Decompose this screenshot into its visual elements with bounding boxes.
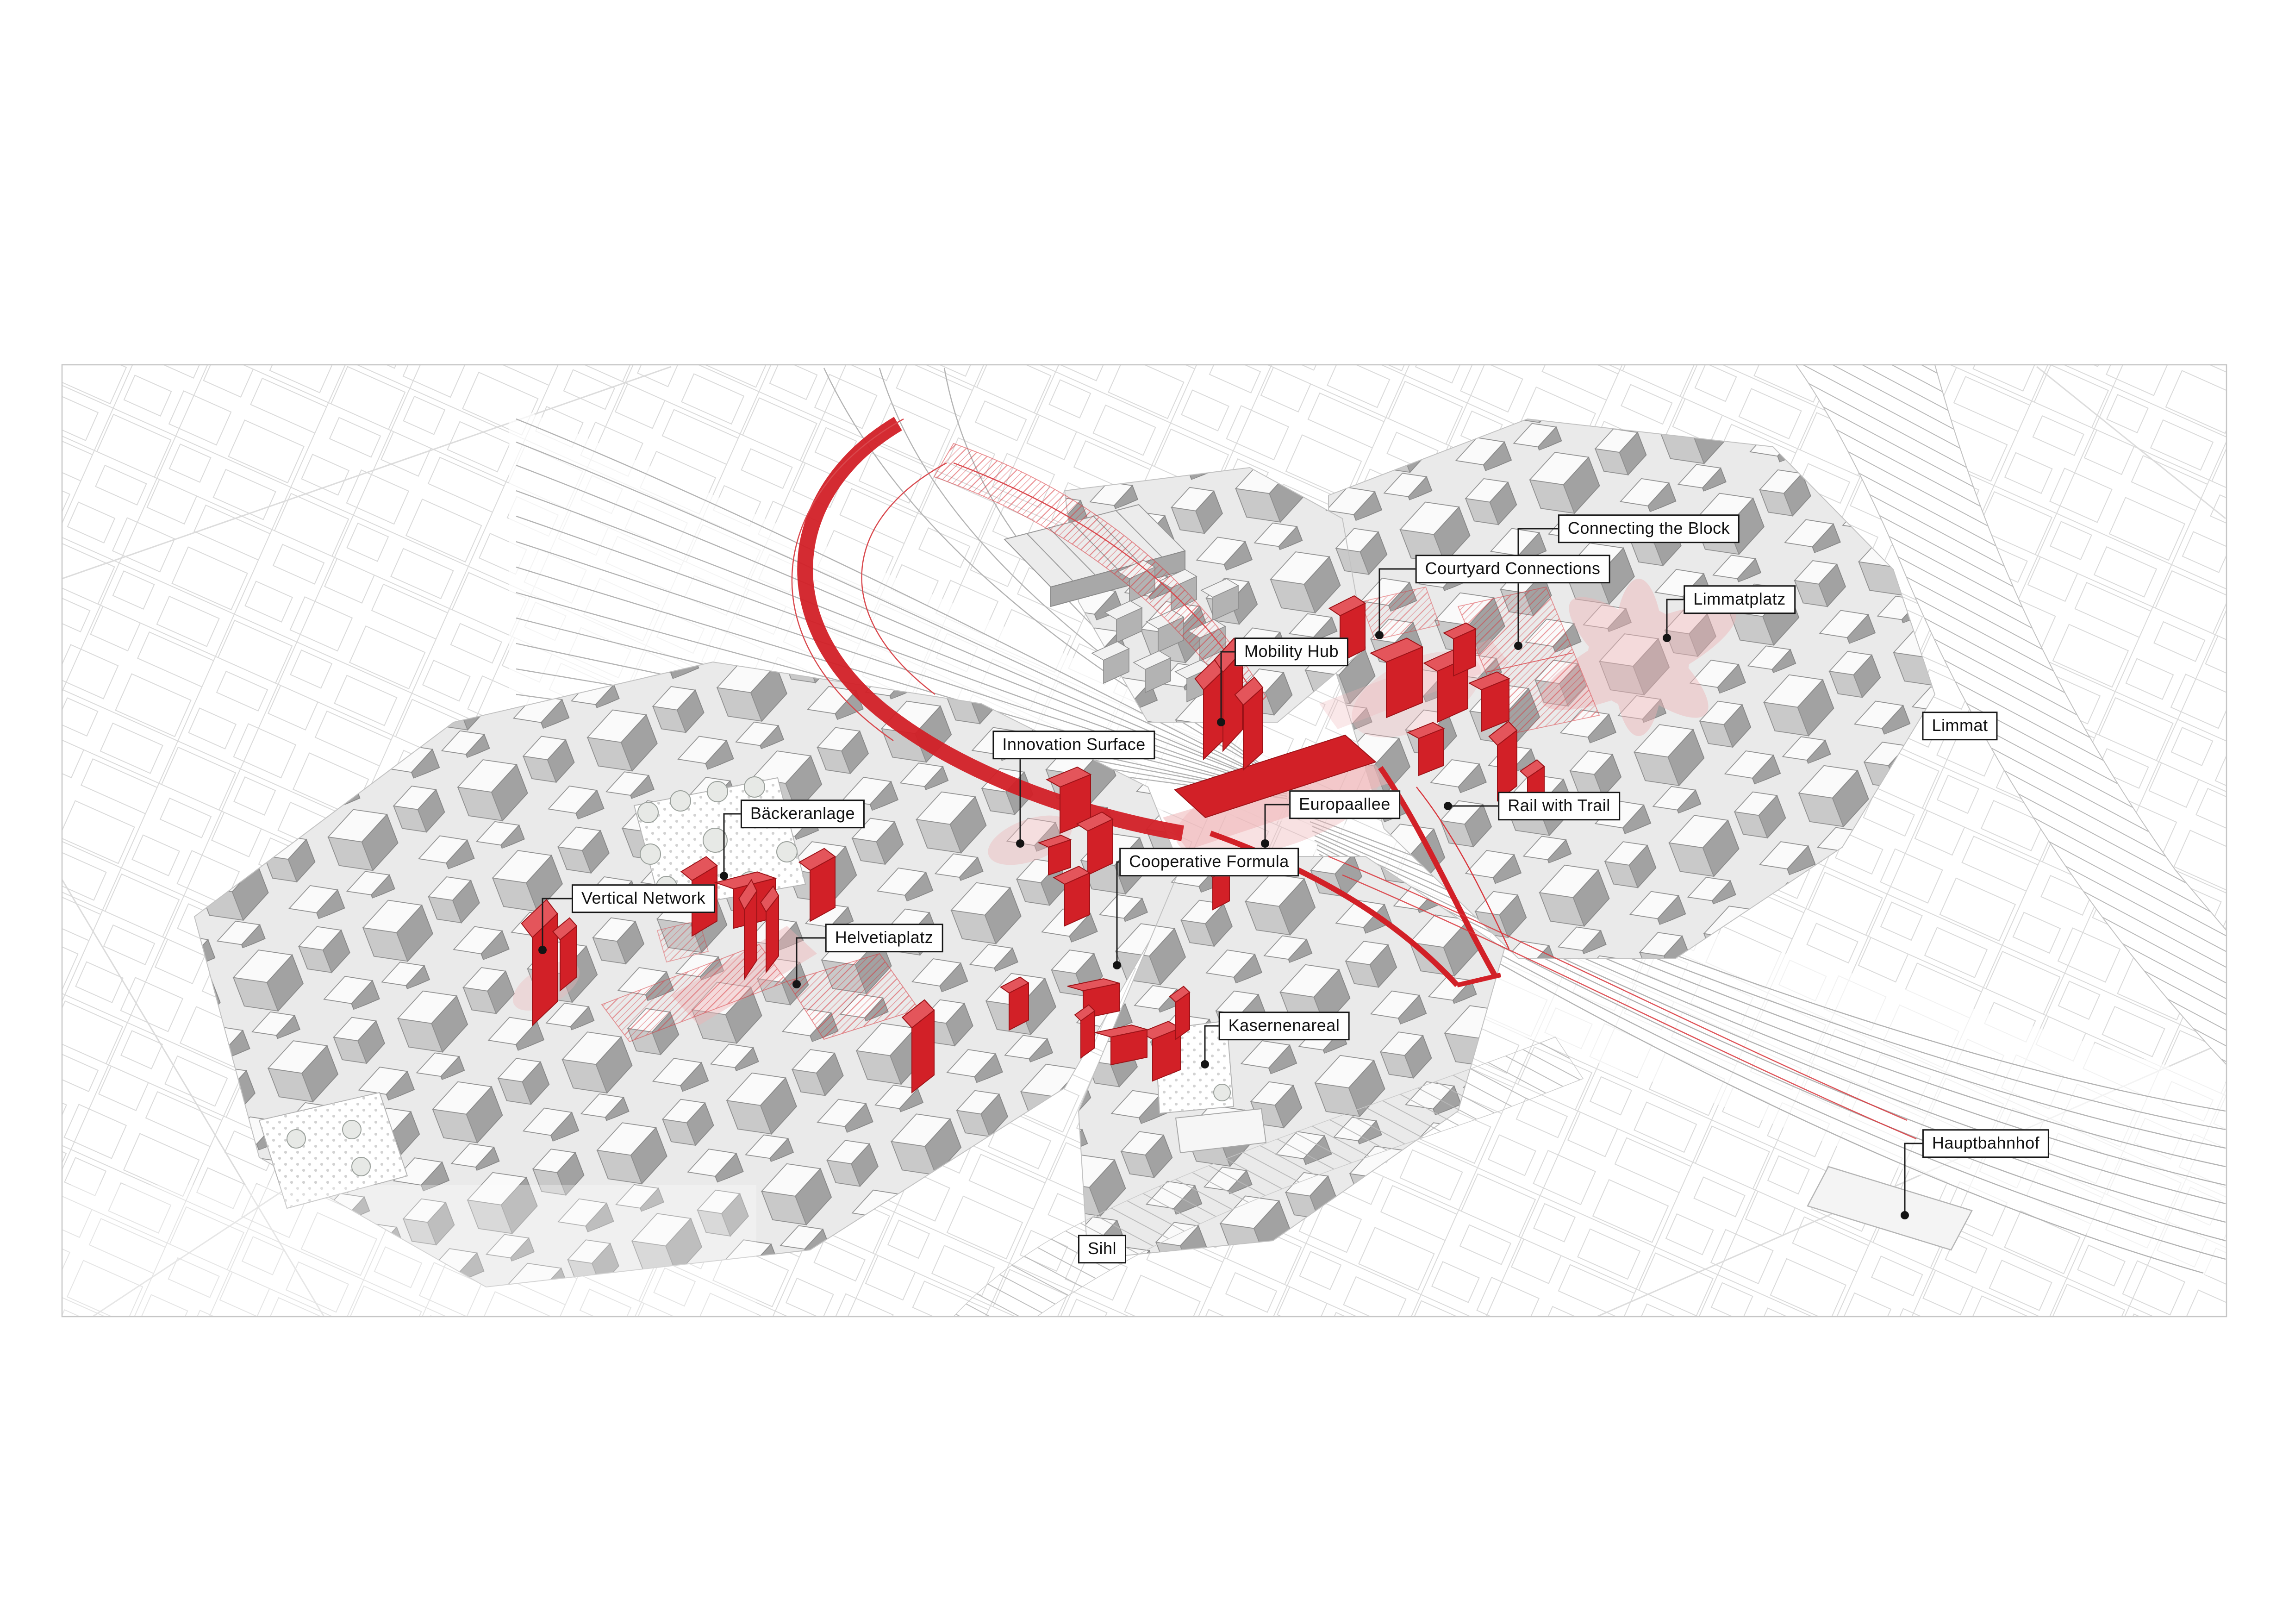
map-label-cooperative-formula: Cooperative Formula [1119, 848, 1299, 876]
map-label-courtyard-connections: Courtyard Connections [1416, 555, 1610, 583]
page: Connecting the BlockCourtyard Connection… [0, 0, 2295, 1624]
map-label-vertical-network: Vertical Network [572, 884, 715, 913]
map-label-innovation-surface: Innovation Surface [992, 731, 1155, 759]
map-label-helvetiaplatz: Helvetiaplatz [825, 924, 943, 952]
map-label-mobility-hub: Mobility Hub [1235, 637, 1348, 666]
map-label-kasernenareal: Kasernenareal [1219, 1012, 1350, 1040]
city-map-drawing [0, 0, 2295, 1624]
map-label-baeckeranlage: Bäckeranlage [741, 800, 865, 828]
map-label-connecting-the-block: Connecting the Block [1558, 514, 1740, 543]
edge-fade [62, 1185, 756, 1317]
map-label-limmatplatz: Limmatplatz [1684, 585, 1796, 614]
map-label-rail-with-trail: Rail with Trail [1498, 792, 1620, 820]
map-label-europaallee: Europaallee [1289, 790, 1400, 819]
map-label-hauptbahnhof: Hauptbahnhof [1922, 1129, 2049, 1158]
map-label-sihl: Sihl [1078, 1235, 1126, 1263]
map-label-limmat: Limmat [1922, 712, 1997, 740]
